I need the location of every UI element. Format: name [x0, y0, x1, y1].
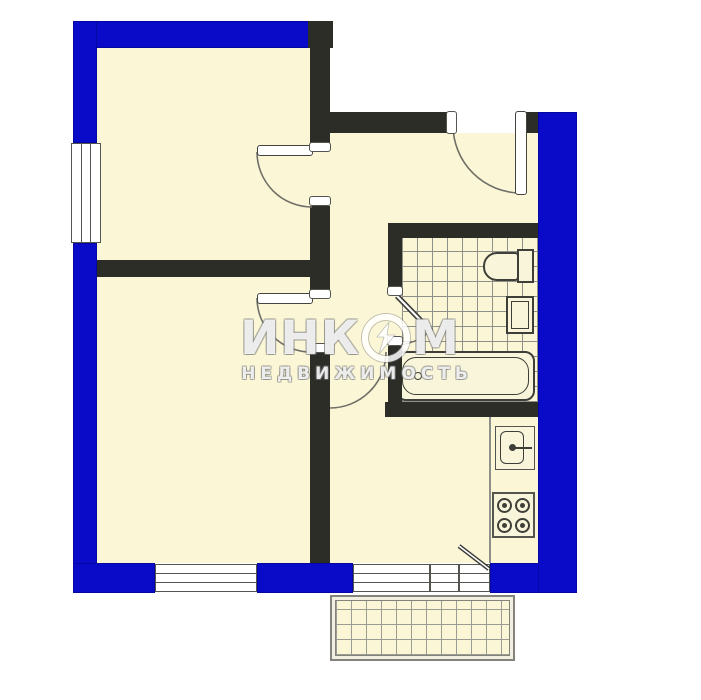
- watermark-subtitle: НЕДВИЖИМОСТЬ: [238, 362, 471, 386]
- lower-room-door-leaf: [257, 293, 313, 304]
- jamb-cap: [309, 142, 331, 152]
- upper-room-door-leaf: [257, 145, 313, 156]
- incom-logo-circle: [362, 314, 410, 362]
- watermark-brand-prefix: ИНК: [240, 311, 360, 366]
- jamb-cap: [446, 111, 457, 134]
- balcony-door-leaf: [459, 546, 489, 569]
- incom-logo-lightning-icon: [373, 322, 399, 354]
- entrance-door-leaf: [515, 111, 527, 195]
- watermark-brand-suffix: М: [412, 311, 460, 366]
- jamb-cap: [387, 286, 403, 296]
- floor-plan-image: ИНК М НЕДВИЖИМОСТЬ: [0, 0, 701, 700]
- jamb-cap: [309, 289, 331, 299]
- jamb-cap: [309, 196, 331, 206]
- watermark-brand: ИНК М: [232, 310, 468, 366]
